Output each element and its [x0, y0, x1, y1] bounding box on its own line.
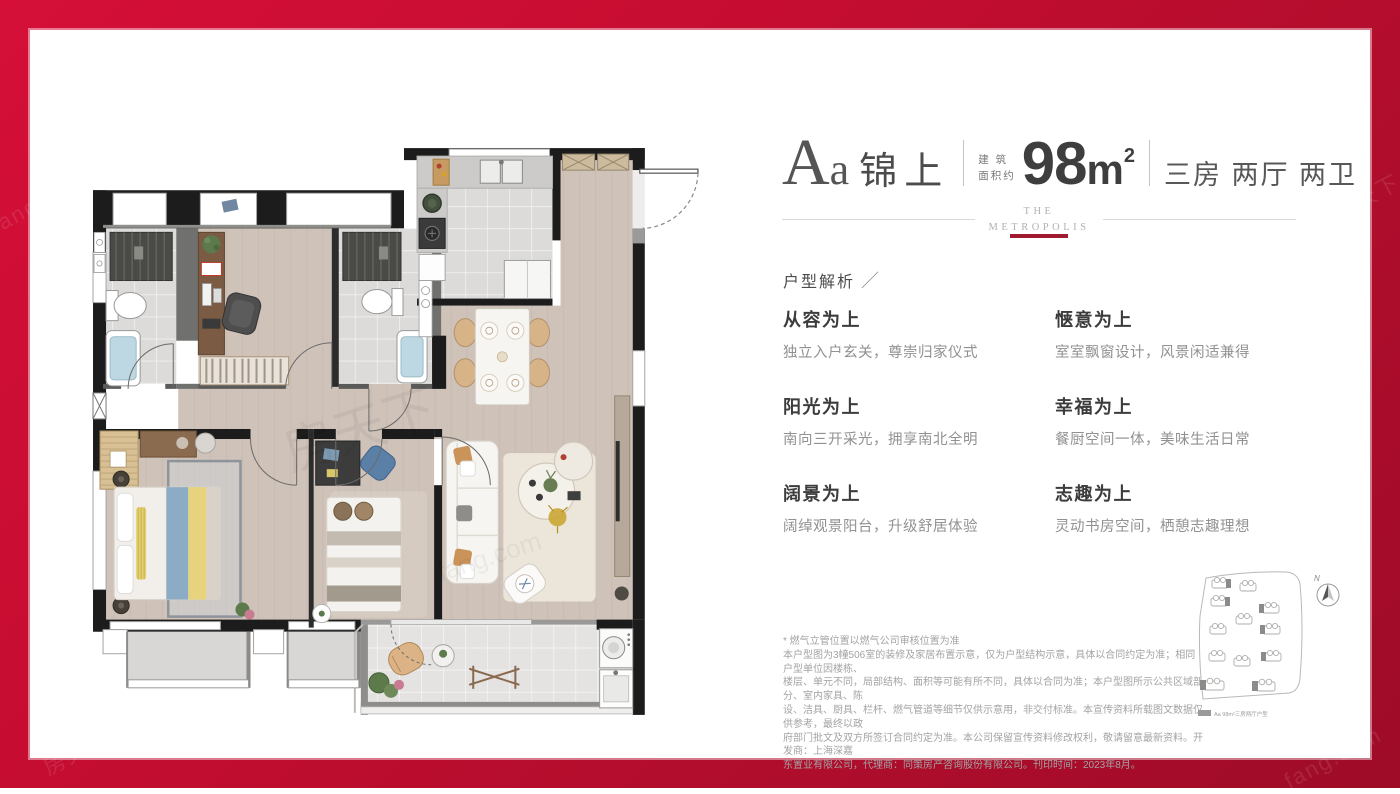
north-label: N: [1314, 574, 1320, 583]
rule-line: [782, 219, 975, 220]
pillow: [117, 493, 133, 541]
feature-desc: 阔绰观景阳台，升级舒居体验: [783, 515, 1055, 536]
stool: [195, 433, 215, 453]
analysis-title: 户型解析: [783, 274, 855, 291]
feature-desc: 独立入户玄关，尊崇归家仪式: [783, 341, 1055, 362]
shaft-icon: [93, 393, 106, 419]
toilet: [362, 290, 392, 314]
faucet-icon: [613, 670, 618, 675]
legend-label: Aa 98m²三房两厅户型: [1214, 710, 1268, 718]
pillow: [117, 545, 133, 593]
compass-icon: N: [1314, 574, 1339, 606]
feature-item: 惬意为上 室室飘窗设计，风景闲适兼得: [1055, 306, 1313, 362]
kitchen-sink: [480, 160, 500, 183]
feature-item: 阳光为上 南向三开采光，拥享南北全明: [783, 393, 1055, 449]
disclaimer-line: * 燃气立管位置以燃气公司审核位置为准: [783, 635, 1205, 649]
disclaimer: * 燃气立管位置以燃气公司审核位置为准 本户型图为3幢506室的装修及家居布置示…: [783, 635, 1205, 773]
site-legend: Aa 98m²三房两厅户型: [1198, 710, 1268, 718]
brand-name: THE METROPOLIS: [989, 204, 1090, 236]
area-label-top: 建 筑: [978, 152, 1016, 168]
feature-desc: 灵动书房空间，栖憩志趣理想: [1055, 515, 1313, 536]
plant-icon: [202, 235, 220, 253]
tv: [616, 441, 620, 521]
feature-title: 阳光为上: [783, 393, 1055, 419]
kitchen-sink: [502, 160, 522, 183]
feature-desc: 南向三开采光，拥享南北全明: [783, 428, 1055, 449]
side-table: [554, 442, 592, 480]
pillow: [355, 502, 373, 520]
feature-item: 幸福为上 餐厨空间一体，美味生活日常: [1055, 393, 1313, 449]
divider: [963, 140, 964, 186]
disclaimer-line: 设、洁具、厨具、栏杆、燃气管道等细节仅供示意用，非交付标准。本宣传资料所载图文数…: [783, 704, 1205, 732]
unit-name: 锦上: [859, 140, 949, 195]
analysis-heading: 户型解析／: [783, 267, 881, 293]
brand-line1: THE: [989, 204, 1090, 220]
feature-item: 志趣为上 灵动书房空间，栖憩志趣理想: [1055, 480, 1313, 536]
feature-title: 阔景为上: [783, 480, 1055, 506]
area-unit: m: [1086, 149, 1123, 191]
vanity: [419, 281, 432, 337]
feature-title: 幸福为上: [1055, 393, 1313, 419]
disclaimer-line: 本户型图为3幢506室的装修及家居布置示意，仅为户型结构示意，具体以合同约定为准…: [783, 649, 1205, 677]
feature-desc: 室室飘窗设计，风景闲适兼得: [1055, 341, 1313, 362]
feature-item: 阔景为上 阔绰观景阳台，升级舒居体验: [783, 480, 1055, 536]
unit-letter-small: a: [830, 148, 850, 192]
area-label-bottom: 面积约: [978, 168, 1016, 184]
unit-letter-big: A: [782, 130, 830, 196]
poster-content: 房天下 fang.com Aa 锦上 建 筑 面积约 98m2 三房 两厅 两卫…: [30, 30, 1370, 758]
yellow-throw: [188, 487, 206, 599]
feature-item: 从容为上 独立入户玄关，尊崇归家仪式: [783, 306, 1055, 362]
floor-plan: 房天下 fang.com: [90, 140, 712, 722]
feature-desc: 餐厨空间一体，美味生活日常: [1055, 428, 1313, 449]
corner-window-box: [103, 630, 127, 654]
entry-door: [633, 169, 698, 228]
site-map: N Aa 98m²三房两厅户型: [1190, 568, 1358, 726]
slash-decor: ／: [861, 271, 881, 291]
bookshelf: [200, 357, 288, 385]
room-layout: 三房 两厅 两卫: [1164, 153, 1357, 192]
corner-window-box: [254, 630, 284, 654]
blue-throw: [166, 487, 188, 599]
disclaimer-line: 东置业有限公司，代理商：同策房产咨询股份有限公司。刊印时间：2023年8月。: [783, 759, 1205, 773]
feature-grid: 从容为上 独立入户玄关，尊崇归家仪式 惬意为上 室室飘窗设计，风景闲适兼得 阳光…: [783, 306, 1313, 567]
feature-title: 从容为上: [783, 306, 1055, 332]
plant-icon: [543, 478, 557, 492]
divider: [1149, 140, 1150, 186]
feature-title: 志趣为上: [1055, 480, 1313, 506]
accent-bar: [782, 234, 1296, 238]
area-exponent: 2: [1124, 145, 1135, 168]
unit-title: Aa 锦上 建 筑 面积约 98m2 三房 两厅 两卫: [782, 130, 1357, 196]
decor-icon: [615, 587, 629, 601]
area-label: 建 筑 面积约: [978, 152, 1016, 185]
disclaimer-line: 府部门批文及双方所签订合同约定为准。本公司保留宣传资料修改权利，敬请留意最新资料…: [783, 732, 1205, 760]
brand-row: THE METROPOLIS: [782, 204, 1296, 236]
faucet-icon: [499, 160, 504, 165]
pillow: [334, 502, 352, 520]
area-value: 98: [1022, 134, 1087, 194]
disclaimer-line: 楼层、单元不同，局部结构、面积等可能有所不同，具体以合同为准；本户型图所示公共区…: [783, 676, 1205, 704]
shower: [343, 232, 401, 280]
feature-title: 惬意为上: [1055, 306, 1313, 332]
rule-line: [1103, 219, 1296, 220]
cutting-board: [433, 159, 449, 185]
